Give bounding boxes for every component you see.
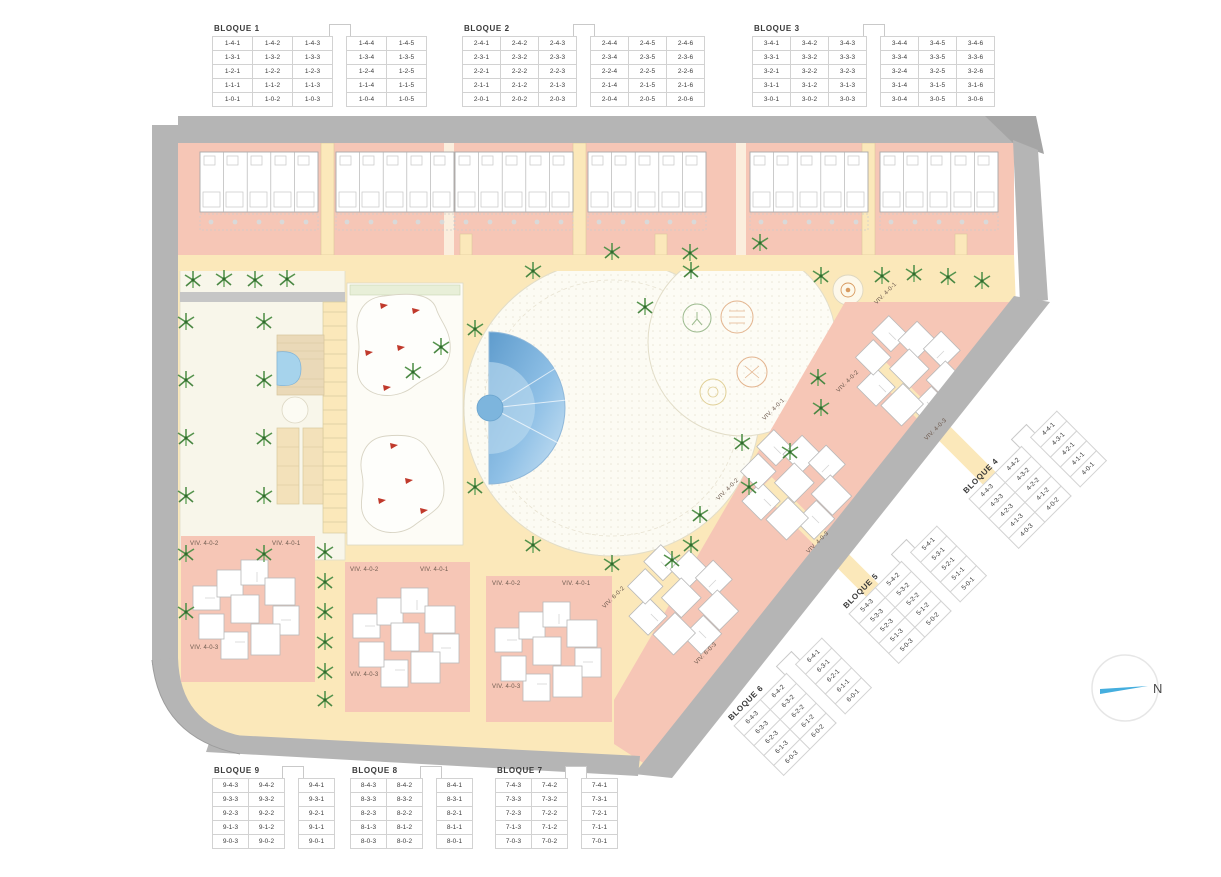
unit-grid: 7-4-37-4-27-4-17-3-37-3-27-3-17-2-37-2-2…	[495, 778, 618, 849]
table-gap	[333, 65, 347, 79]
unit-cell: 2-1-4	[591, 79, 629, 93]
table-gap	[577, 51, 591, 65]
top-road	[178, 116, 1023, 143]
unit-cell: 2-4-3	[539, 37, 577, 51]
unit-cell: 8-2-2	[387, 807, 423, 821]
unit-cell: 1-1-3	[293, 79, 333, 93]
unit-cell: 2-0-6	[667, 93, 705, 107]
unit-grid: 8-4-38-4-28-4-18-3-38-3-28-3-18-2-38-2-2…	[350, 778, 473, 849]
unit-cell: 1-4-1	[213, 37, 253, 51]
unit-cell: 3-1-6	[957, 79, 995, 93]
unit-cell: 2-0-5	[629, 93, 667, 107]
unit-cell: 7-2-2	[532, 807, 568, 821]
table-gap	[577, 65, 591, 79]
table-gap	[285, 807, 299, 821]
table-gap	[285, 835, 299, 849]
unit-cell: 7-2-3	[496, 807, 532, 821]
unit-cell: 3-4-6	[957, 37, 995, 51]
unit-cell: 1-3-4	[347, 51, 387, 65]
unit-cell: 1-1-5	[387, 79, 427, 93]
unit-cell: 3-1-1	[753, 79, 791, 93]
table-gap	[333, 51, 347, 65]
unit-cell: 1-0-5	[387, 93, 427, 107]
unit-cell: 2-4-2	[501, 37, 539, 51]
table-gap	[568, 779, 582, 793]
unit-cell: 9-2-3	[213, 807, 249, 821]
unit-cell: 3-4-4	[881, 37, 919, 51]
unit-cell: 3-3-4	[881, 51, 919, 65]
unit-cell: 3-2-3	[829, 65, 867, 79]
unit-cell: 3-2-6	[957, 65, 995, 79]
north-arrow: N	[1092, 655, 1162, 721]
table-gap	[423, 807, 437, 821]
table-gap	[568, 821, 582, 835]
viv-label: VIV. 4-0-2	[350, 567, 378, 573]
unit-cell: 1-4-5	[387, 37, 427, 51]
unit-cell: 9-0-1	[299, 835, 335, 849]
top-building-strip	[178, 143, 1014, 271]
unit-cell: 2-2-2	[501, 65, 539, 79]
unit-cell: 3-2-2	[791, 65, 829, 79]
unit-cell: 3-1-4	[881, 79, 919, 93]
unit-cell: 1-0-3	[293, 93, 333, 107]
svg-text:N: N	[1153, 681, 1162, 696]
unit-cell: 3-4-1	[753, 37, 791, 51]
unit-cell: 3-4-2	[791, 37, 829, 51]
unit-cell: 1-3-3	[293, 51, 333, 65]
table-gap	[867, 65, 881, 79]
viv-label: VIV. 4-0-1	[562, 581, 590, 587]
unit-cell: 2-1-6	[667, 79, 705, 93]
bloque-2-table: BLOQUE 2 2-4-12-4-22-4-32-4-42-4-52-4-62…	[462, 24, 705, 107]
unit-cell: 8-3-2	[387, 793, 423, 807]
table-gap	[285, 793, 299, 807]
table-gap	[867, 37, 881, 51]
unit-cell: 2-3-6	[667, 51, 705, 65]
unit-cell: 1-2-4	[347, 65, 387, 79]
unit-grid: 9-4-39-4-29-4-19-3-39-3-29-3-19-2-39-2-2…	[212, 778, 335, 849]
viv-label: VIV. 4-0-2	[492, 581, 520, 587]
sunbathing-lawn	[347, 283, 463, 545]
unit-cell: 1-2-5	[387, 65, 427, 79]
unit-cell: 9-3-3	[213, 793, 249, 807]
unit-cell: 9-1-1	[299, 821, 335, 835]
unit-cell: 8-1-3	[351, 821, 387, 835]
unit-cell: 8-0-3	[351, 835, 387, 849]
unit-cell: 9-1-2	[249, 821, 285, 835]
unit-grid: 3-4-13-4-23-4-33-4-43-4-53-4-63-3-13-3-2…	[752, 36, 995, 107]
table-gap	[568, 793, 582, 807]
unit-cell: 1-4-4	[347, 37, 387, 51]
viv-label: VIV. 4-0-1	[420, 567, 448, 573]
viv-label: VIV. 4-0-2	[190, 541, 218, 547]
table-gap	[423, 793, 437, 807]
table-gap	[333, 37, 347, 51]
unit-cell: 9-4-1	[299, 779, 335, 793]
unit-cell: 7-1-1	[582, 821, 618, 835]
unit-cell: 2-0-4	[591, 93, 629, 107]
bloque-3-table: BLOQUE 3 3-4-13-4-23-4-33-4-43-4-53-4-63…	[752, 24, 995, 107]
table-gap	[867, 93, 881, 107]
table-gap	[577, 37, 591, 51]
unit-grid: 1-4-11-4-21-4-31-4-41-4-51-3-11-3-21-3-3…	[212, 36, 427, 107]
unit-cell: 2-0-1	[463, 93, 501, 107]
unit-cell: 2-2-1	[463, 65, 501, 79]
unit-cell: 2-3-3	[539, 51, 577, 65]
fountain-circle	[833, 275, 863, 305]
unit-cell: 8-3-3	[351, 793, 387, 807]
table-gap	[867, 79, 881, 93]
unit-cell: 7-3-2	[532, 793, 568, 807]
site-plan-page: N BLOQUE 1 1-4-11-4-21-4-31-4-41-4-51-3-…	[0, 0, 1221, 877]
unit-cell: 7-0-2	[532, 835, 568, 849]
unit-cell: 7-4-2	[532, 779, 568, 793]
unit-cell: 7-2-1	[582, 807, 618, 821]
unit-cell: 7-4-1	[582, 779, 618, 793]
table-gap	[423, 821, 437, 835]
unit-cell: 3-3-5	[919, 51, 957, 65]
unit-cell: 2-4-4	[591, 37, 629, 51]
unit-cell: 3-0-6	[957, 93, 995, 107]
unit-cell: 1-0-2	[253, 93, 293, 107]
unit-cell: 7-4-3	[496, 779, 532, 793]
table-gap	[568, 835, 582, 849]
table-gap	[867, 51, 881, 65]
unit-cell: 2-4-5	[629, 37, 667, 51]
unit-cell: 3-3-1	[753, 51, 791, 65]
table-gap	[577, 79, 591, 93]
bloque-9-title: BLOQUE 9	[214, 766, 335, 775]
unit-cell: 9-0-2	[249, 835, 285, 849]
unit-cell: 2-4-6	[667, 37, 705, 51]
unit-cell: 2-2-5	[629, 65, 667, 79]
unit-cell: 3-3-3	[829, 51, 867, 65]
unit-grid: 2-4-12-4-22-4-32-4-42-4-52-4-62-3-12-3-2…	[462, 36, 705, 107]
unit-cell: 9-0-3	[213, 835, 249, 849]
viv-label: VIV. 4-0-3	[492, 684, 520, 690]
unit-cell: 9-3-2	[249, 793, 285, 807]
unit-cell: 8-1-2	[387, 821, 423, 835]
unit-cell: 1-3-2	[253, 51, 293, 65]
unit-cell: 9-3-1	[299, 793, 335, 807]
table-gap	[568, 807, 582, 821]
unit-cell: 1-4-3	[293, 37, 333, 51]
unit-cell: 2-0-2	[501, 93, 539, 107]
unit-cell: 2-3-1	[463, 51, 501, 65]
unit-cell: 7-3-3	[496, 793, 532, 807]
unit-cell: 3-4-3	[829, 37, 867, 51]
viv-label: VIV. 4-0-3	[190, 645, 218, 651]
unit-cell: 1-2-2	[253, 65, 293, 79]
unit-cell: 8-4-1	[437, 779, 473, 793]
right-road	[1013, 140, 1048, 304]
unit-cell: 9-4-2	[249, 779, 285, 793]
unit-cell: 7-1-2	[532, 821, 568, 835]
unit-cell: 1-1-4	[347, 79, 387, 93]
unit-cell: 3-2-1	[753, 65, 791, 79]
unit-cell: 3-1-2	[791, 79, 829, 93]
unit-cell: 3-0-4	[881, 93, 919, 107]
unit-cell: 1-3-5	[387, 51, 427, 65]
table-gap	[333, 79, 347, 93]
bloque-7-table: BLOQUE 7 7-4-37-4-27-4-17-3-37-3-27-3-17…	[495, 766, 618, 849]
unit-cell: 2-4-1	[463, 37, 501, 51]
unit-cell: 8-0-1	[437, 835, 473, 849]
unit-cell: 1-2-3	[293, 65, 333, 79]
unit-cell: 1-4-2	[253, 37, 293, 51]
table-gap	[333, 93, 347, 107]
bloque-9-table: BLOQUE 9 9-4-39-4-29-4-19-3-39-3-29-3-19…	[212, 766, 335, 849]
bloque-8-title: BLOQUE 8	[352, 766, 473, 775]
table-gap	[423, 835, 437, 849]
left-road	[152, 125, 178, 665]
splash-pool	[277, 352, 301, 386]
unit-cell: 3-3-6	[957, 51, 995, 65]
bloque-7-title: BLOQUE 7	[497, 766, 618, 775]
unit-cell: 1-0-4	[347, 93, 387, 107]
unit-cell: 1-0-1	[213, 93, 253, 107]
unit-cell: 2-2-3	[539, 65, 577, 79]
unit-cell: 2-2-4	[591, 65, 629, 79]
unit-cell: 2-1-2	[501, 79, 539, 93]
table-gap	[285, 821, 299, 835]
unit-cell: 2-3-4	[591, 51, 629, 65]
unit-cell: 2-3-5	[629, 51, 667, 65]
unit-cell: 9-2-1	[299, 807, 335, 821]
unit-cell: 8-3-1	[437, 793, 473, 807]
unit-cell: 3-0-2	[791, 93, 829, 107]
unit-cell: 3-1-5	[919, 79, 957, 93]
unit-cell: 9-1-3	[213, 821, 249, 835]
unit-cell: 3-0-1	[753, 93, 791, 107]
unit-cell: 3-4-5	[919, 37, 957, 51]
unit-cell: 3-1-3	[829, 79, 867, 93]
unit-cell: 2-1-5	[629, 79, 667, 93]
unit-cell: 2-2-6	[667, 65, 705, 79]
unit-cell: 7-0-1	[582, 835, 618, 849]
bloque-8-table: BLOQUE 8 8-4-38-4-28-4-18-3-38-3-28-3-18…	[350, 766, 473, 849]
unit-cell: 2-3-2	[501, 51, 539, 65]
unit-cell: 7-1-3	[496, 821, 532, 835]
unit-cell: 2-1-1	[463, 79, 501, 93]
unit-cell: 2-0-3	[539, 93, 577, 107]
unit-cell: 1-1-2	[253, 79, 293, 93]
unit-cell: 2-1-3	[539, 79, 577, 93]
viv-label: VIV. 4-0-3	[350, 672, 378, 678]
bloque-1-table: BLOQUE 1 1-4-11-4-21-4-31-4-41-4-51-3-11…	[212, 24, 427, 107]
unit-cell: 3-2-5	[919, 65, 957, 79]
unit-cell: 7-3-1	[582, 793, 618, 807]
unit-cell: 1-3-1	[213, 51, 253, 65]
table-gap	[285, 779, 299, 793]
unit-cell: 3-3-2	[791, 51, 829, 65]
unit-cell: 8-0-2	[387, 835, 423, 849]
unit-cell: 1-1-1	[213, 79, 253, 93]
unit-cell: 8-1-1	[437, 821, 473, 835]
unit-cell: 9-4-3	[213, 779, 249, 793]
unit-cell: 8-2-1	[437, 807, 473, 821]
garden-zone	[180, 268, 347, 560]
unit-cell: 7-0-3	[496, 835, 532, 849]
unit-cell: 8-4-3	[351, 779, 387, 793]
unit-cell: 8-2-3	[351, 807, 387, 821]
unit-cell: 3-0-5	[919, 93, 957, 107]
bloque-1-title: BLOQUE 1	[214, 24, 427, 33]
table-gap	[423, 779, 437, 793]
table-gap	[577, 93, 591, 107]
viv-label: VIV. 4-0-1	[272, 541, 300, 547]
unit-cell: 9-2-2	[249, 807, 285, 821]
unit-cell: 3-2-4	[881, 65, 919, 79]
unit-cell: 1-2-1	[213, 65, 253, 79]
unit-cell: 8-4-2	[387, 779, 423, 793]
unit-cell: 3-0-3	[829, 93, 867, 107]
